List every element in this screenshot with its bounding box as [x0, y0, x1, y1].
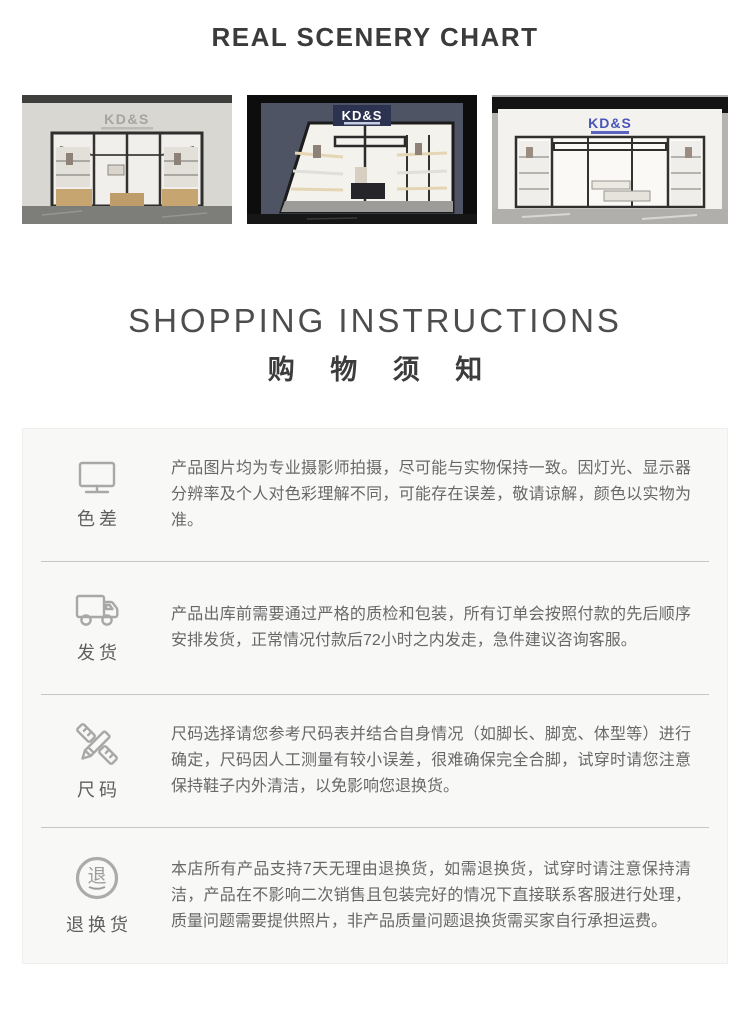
heading-chinese: 购 物 须 知	[0, 348, 750, 387]
instruction-row-shipping: 发货 产品出库前需要通过严格的质检和包装，所有订单会按照付款的先后顺序安排发货，…	[23, 562, 727, 694]
store-sign-text: KD&S	[588, 115, 632, 131]
instructions-box: 色差 产品图片均为专业摄影师拍摄，尽可能与实物保持一致。因灯光、显示器分辨率及个…	[22, 428, 728, 964]
instruction-row-color-difference: 色差 产品图片均为专业摄影师拍摄，尽可能与实物保持一致。因灯光、显示器分辨率及个…	[23, 429, 727, 561]
store-sign-text: KD&S	[342, 108, 383, 123]
instruction-label: 退换货	[62, 911, 132, 937]
store-photo-3: KD&S	[492, 95, 728, 224]
store-sign-text: KD&S	[104, 111, 150, 127]
pencil-ruler-icon	[74, 721, 120, 767]
store-photo-2: KD&S	[247, 95, 477, 224]
truck-icon	[74, 592, 120, 630]
instruction-label: 发货	[73, 639, 121, 665]
store-photo-1: KD&S	[22, 95, 232, 224]
instruction-row-sizing: 尺码 尺码选择请您参考尺码表并结合自身情况（如脚长、脚宽、体型等）进行确定，尺码…	[23, 695, 727, 827]
instruction-label: 色差	[73, 505, 121, 531]
page-title: REAL SCENERY CHART	[0, 0, 750, 53]
instruction-label: 尺码	[73, 776, 121, 802]
instruction-text: 产品出库前需要通过严格的质检和包装，所有订单会按照付款的先后顺序安排发货，正常情…	[171, 602, 691, 654]
return-icon: 退	[73, 854, 121, 902]
product-info-page: REAL SCENERY CHART KD&S	[0, 0, 750, 1011]
heading-english: SHOPPING INSTRUCTIONS	[0, 302, 750, 340]
shopping-instructions-heading: SHOPPING INSTRUCTIONS 购 物 须 知	[0, 302, 750, 387]
instruction-text: 本店所有产品支持7天无理由退换货，如需退换货，试穿时请注意保持清洁，产品在不影响…	[171, 857, 691, 935]
return-badge-char: 退	[87, 865, 106, 887]
monitor-icon	[77, 460, 117, 496]
store-photo-row: KD&S	[0, 95, 750, 224]
instruction-text: 产品图片均为专业摄影师拍摄，尽可能与实物保持一致。因灯光、显示器分辨率及个人对色…	[171, 456, 691, 534]
instruction-text: 尺码选择请您参考尺码表并结合自身情况（如脚长、脚宽、体型等）进行确定，尺码因人工…	[171, 722, 691, 800]
instruction-row-returns: 退 退换货 本店所有产品支持7天无理由退换货，如需退换货，试穿时请注意保持清洁，…	[23, 828, 727, 963]
